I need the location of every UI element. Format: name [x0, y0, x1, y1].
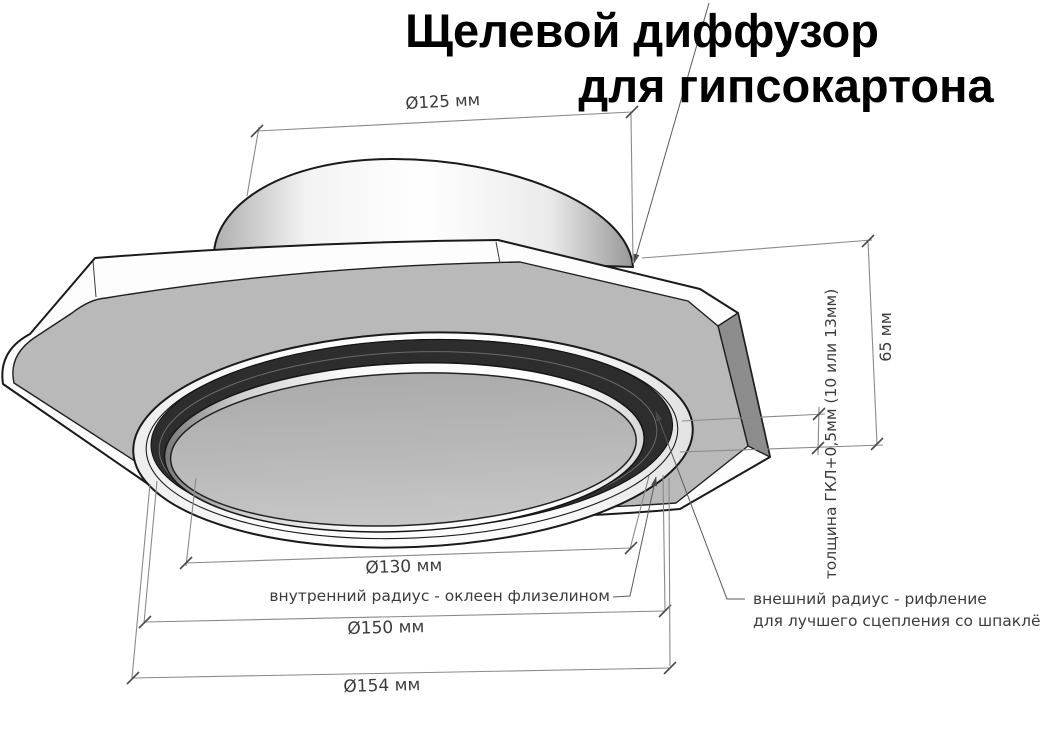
dim-label-outer-diameter: Ø154 мм [343, 675, 420, 697]
technical-drawing-page: Ø125 мм 65 мм толщина ГКЛ+0,5мм (10 или … [0, 0, 1040, 729]
note-outer-radius-line1: внешний радиус - рифление [753, 590, 987, 608]
title-line1: Щелевой диффузор [405, 4, 879, 57]
note-outer-radius-line2: для лучшего сцепления со шпаклёвкой [753, 612, 1040, 630]
dim-label-top-diameter: Ø125 мм [405, 90, 481, 113]
dim-label-height: 65 мм [876, 312, 895, 362]
drawing-title: Щелевой диффузор для гипсокартона [405, 4, 994, 112]
note-inner-radius: внутренний радиус - оклеен флизелином [269, 587, 610, 605]
dim-label-ring-diameter: Ø150 мм [347, 617, 424, 639]
slot-diffuser-technical-drawing: Ø125 мм 65 мм толщина ГКЛ+0,5мм (10 или … [0, 0, 1040, 729]
title-line2: для гипсокартона [578, 59, 994, 112]
diffuser-3d-view [2, 159, 770, 559]
dim-label-panel-thickness: толщина ГКЛ+0,5мм (10 или 13мм) [822, 289, 840, 580]
dim-label-inner-diameter: Ø130 мм [365, 556, 443, 579]
